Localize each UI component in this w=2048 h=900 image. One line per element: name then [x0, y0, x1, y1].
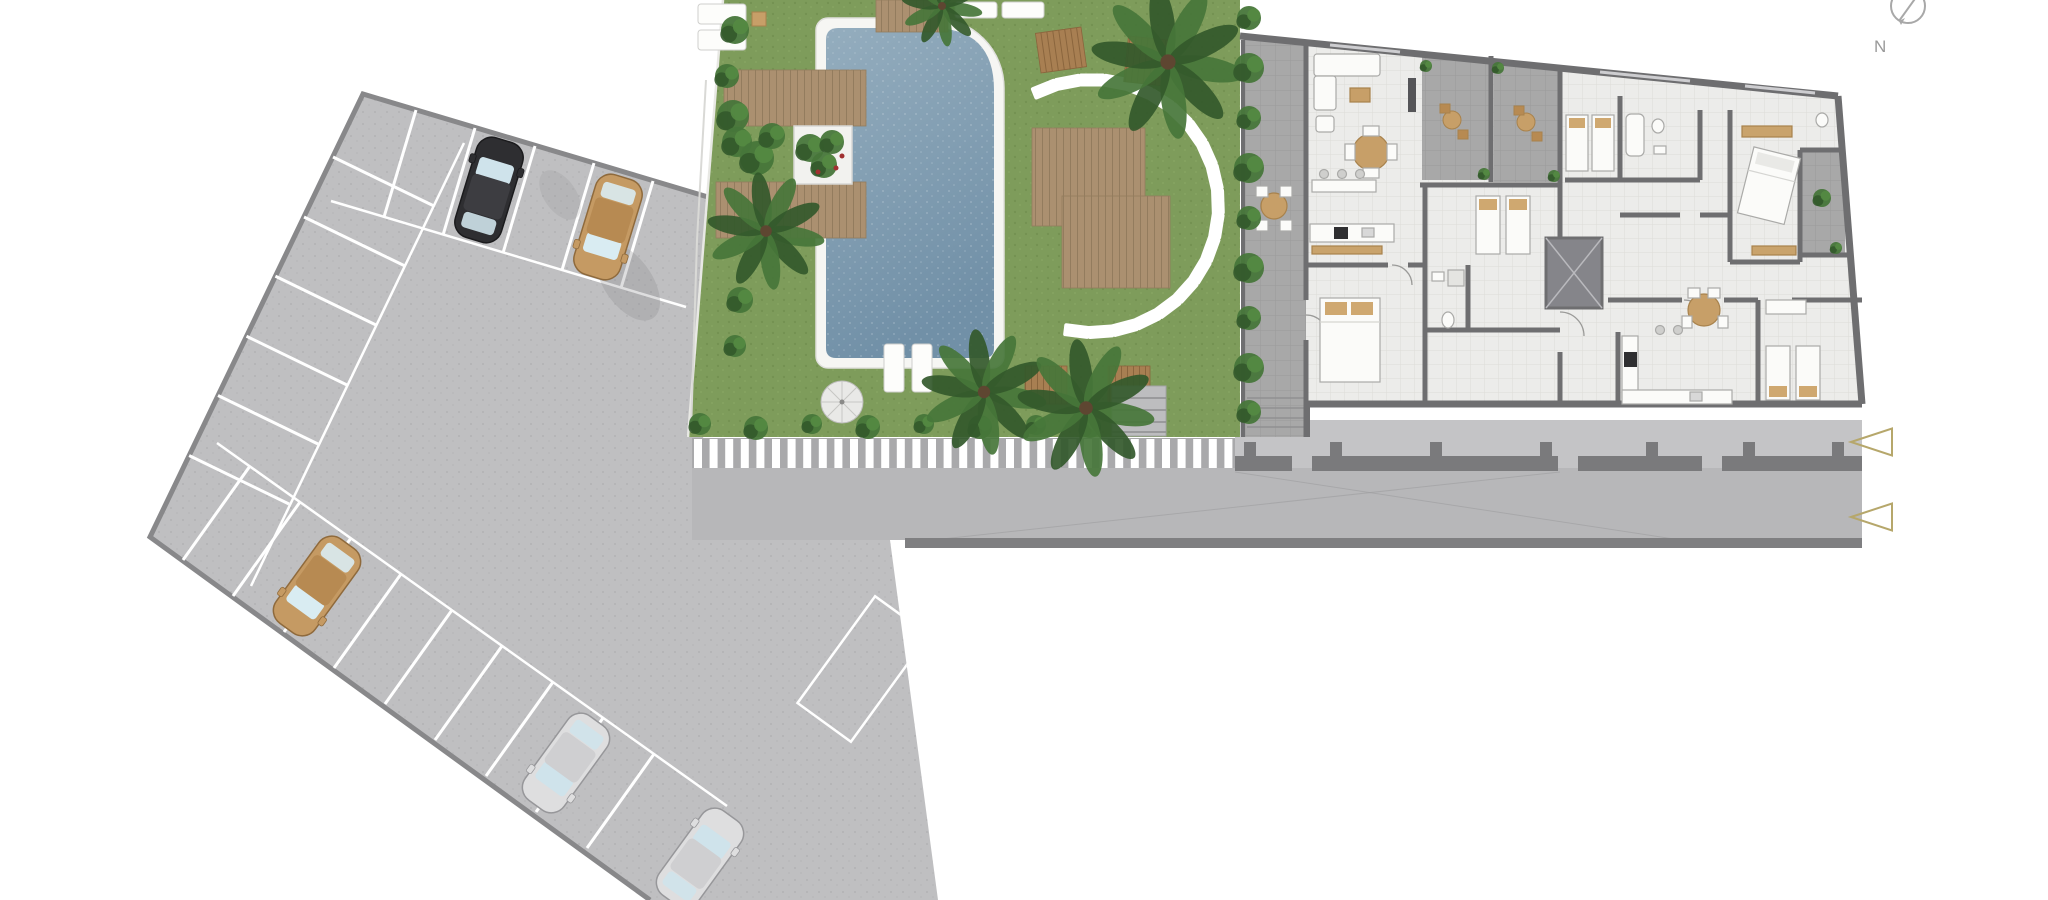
bush-leaf [754, 418, 767, 431]
compass: N [1874, 0, 1925, 56]
stove [1624, 352, 1637, 367]
dining-chair [1688, 288, 1700, 298]
boundary-pier [1430, 442, 1442, 458]
bush-leaf [725, 66, 738, 79]
bush-leaf [738, 290, 752, 304]
tv-cabinet [1408, 78, 1416, 112]
coffee-table [1350, 88, 1370, 102]
site-plan-canvas: N [0, 0, 2048, 900]
pillow [1479, 199, 1497, 210]
bush-leaf [1247, 156, 1264, 173]
planter-flower [834, 166, 839, 171]
crosswalk-stripe [1037, 439, 1045, 468]
bush-leaf [698, 415, 710, 427]
site-plan: N [0, 0, 2048, 900]
boundary-wall [1312, 456, 1558, 471]
dining-chair [1387, 144, 1397, 160]
palm-trunk [938, 2, 946, 10]
bath-sink [1654, 146, 1666, 154]
bar-stool [1356, 170, 1365, 179]
bush-leaf [731, 103, 749, 121]
pillow [1769, 386, 1787, 397]
parasol-pole [840, 400, 845, 405]
planter-flower [816, 170, 821, 175]
sink [1362, 228, 1374, 237]
compass-label: N [1874, 37, 1886, 56]
garden [688, 0, 1246, 478]
armchair [1316, 116, 1334, 132]
dining-chair [1708, 288, 1720, 298]
crosswalk-stripe [975, 439, 983, 468]
crosswalk-stripe [741, 439, 749, 468]
palm-trunk [1160, 54, 1175, 69]
crosswalk-stripe [881, 439, 889, 468]
bush-leaf [1247, 108, 1260, 121]
outdoor-chair [1514, 106, 1524, 115]
hedge-bush [1236, 106, 1261, 130]
sun-lounger [884, 344, 904, 392]
boundary-pier [1330, 442, 1342, 458]
stepping-stone [1079, 74, 1105, 87]
pillow [1351, 302, 1373, 315]
bush-leaf [1497, 63, 1504, 70]
crosswalk-stripe [1162, 439, 1170, 468]
crosswalk-stripe [928, 439, 936, 468]
pillow [1569, 118, 1585, 128]
planter-flower [840, 154, 845, 159]
dining-chair [1363, 126, 1379, 136]
palm-trunk [760, 225, 772, 237]
crosswalk-stripe [912, 439, 920, 468]
bed-bench [1752, 246, 1796, 255]
outdoor-chair [1440, 104, 1450, 113]
bar-stool [1320, 170, 1329, 179]
kitchen-counter [1310, 224, 1394, 242]
kitchen-counter [1622, 390, 1732, 404]
sofa [1314, 54, 1380, 76]
crosswalk-stripe [1006, 439, 1014, 468]
boundary-pier [1646, 442, 1658, 458]
sun-lounger [1002, 2, 1044, 18]
wardrobe [1742, 126, 1792, 137]
pillow [1325, 302, 1347, 315]
stepping-stone [1211, 188, 1225, 214]
crosswalk-stripe [803, 439, 811, 468]
crosswalk-stripe [725, 439, 733, 468]
bush-leaf [1483, 169, 1490, 176]
crosswalk-stripe [819, 439, 827, 468]
bush-leaf [733, 19, 748, 34]
bush-leaf [733, 337, 745, 349]
toilet [1816, 113, 1828, 127]
bar-stool [1656, 326, 1665, 335]
bush-leaf [830, 132, 843, 145]
bush-leaf [1553, 171, 1560, 178]
pillow [1595, 118, 1611, 128]
bath-sink [1432, 272, 1444, 281]
boundary-wall [1235, 456, 1292, 471]
outdoor-chair [1280, 220, 1292, 231]
boundary-pier [1743, 442, 1755, 458]
crosswalk-stripe [710, 439, 718, 468]
crosswalk-stripe [850, 439, 858, 468]
stair-core [1546, 238, 1602, 308]
pillow [1509, 199, 1527, 210]
crosswalk-stripe [897, 439, 905, 468]
stove [1334, 227, 1348, 239]
bush-leaf [1247, 356, 1264, 373]
boundary-pier [1540, 442, 1552, 458]
stepping-stone [1087, 324, 1114, 339]
dining-chair [1363, 168, 1379, 178]
shower [1448, 270, 1464, 286]
bush-leaf [1821, 191, 1831, 201]
sofa [1766, 300, 1806, 314]
pillow [1799, 386, 1817, 397]
crosswalk-stripe [1193, 439, 1201, 468]
crosswalk-stripe [1146, 439, 1154, 468]
palm-trunk [978, 386, 990, 398]
crosswalk-stripe [1209, 439, 1217, 468]
crosswalk-stripe [1178, 439, 1186, 468]
dining-chair [1345, 144, 1355, 160]
hedge-bush [1236, 400, 1261, 424]
dining-table [1353, 134, 1389, 170]
building-edge-trees [1233, 6, 1264, 424]
deck-platform-2 [1062, 196, 1170, 288]
outdoor-chair [1280, 186, 1292, 197]
bush-leaf [1247, 402, 1260, 415]
side-table [752, 12, 766, 26]
bush-leaf [1835, 243, 1842, 250]
parasol [821, 381, 863, 423]
bar-counter [1312, 180, 1376, 192]
outdoor-table [1443, 111, 1461, 129]
crosswalk-stripe [866, 439, 874, 468]
toilet [1442, 312, 1454, 328]
outdoor-table [1517, 113, 1535, 131]
boundary-wall [1722, 456, 1862, 471]
boundary-pier [1244, 442, 1256, 458]
picnic-bench [1035, 27, 1086, 73]
bush-leaf [1425, 61, 1432, 68]
outdoor-chair [1532, 132, 1542, 141]
sideboard [1312, 246, 1382, 254]
boundary-wall [1578, 456, 1702, 471]
apartment-building [1233, 6, 1862, 471]
crosswalk-stripe [944, 439, 952, 468]
dining-table [1688, 294, 1720, 326]
crosswalk-stripe [1022, 439, 1030, 468]
bar-stool [1674, 326, 1683, 335]
palm-trunk [1079, 401, 1093, 415]
hedge-bush [1236, 206, 1261, 230]
outdoor-chair [1256, 186, 1268, 197]
bush-leaf [811, 416, 822, 427]
bush-leaf [866, 417, 879, 430]
hedge-bush [1236, 6, 1261, 30]
compass-circle [1891, 0, 1925, 23]
crosswalk-stripe [772, 439, 780, 468]
crosswalk-stripe [788, 439, 796, 468]
bar-stool [1338, 170, 1347, 179]
sink [1690, 392, 1702, 401]
bush-leaf [1247, 8, 1260, 21]
bush-leaf [1247, 308, 1260, 321]
dining-chair [1718, 316, 1728, 328]
outdoor-chair [1458, 130, 1468, 139]
crosswalk-stripe [694, 439, 702, 468]
crosswalk-stripe [756, 439, 764, 468]
sofa-chaise [1314, 76, 1336, 110]
bush-leaf [1247, 256, 1264, 273]
bush-leaf [770, 126, 784, 140]
toilet [1652, 119, 1664, 133]
bathtub [1626, 114, 1644, 156]
bush-leaf [1247, 208, 1260, 221]
hedge-bush [1236, 306, 1261, 330]
dining-chair [1682, 316, 1692, 328]
bush-leaf [1247, 56, 1264, 73]
crosswalk-stripe [1224, 439, 1232, 468]
road-curb [905, 538, 1862, 548]
crosswalk-stripe [834, 439, 842, 468]
boundary-pier [1832, 442, 1844, 458]
compass-needle [1899, 0, 1917, 21]
